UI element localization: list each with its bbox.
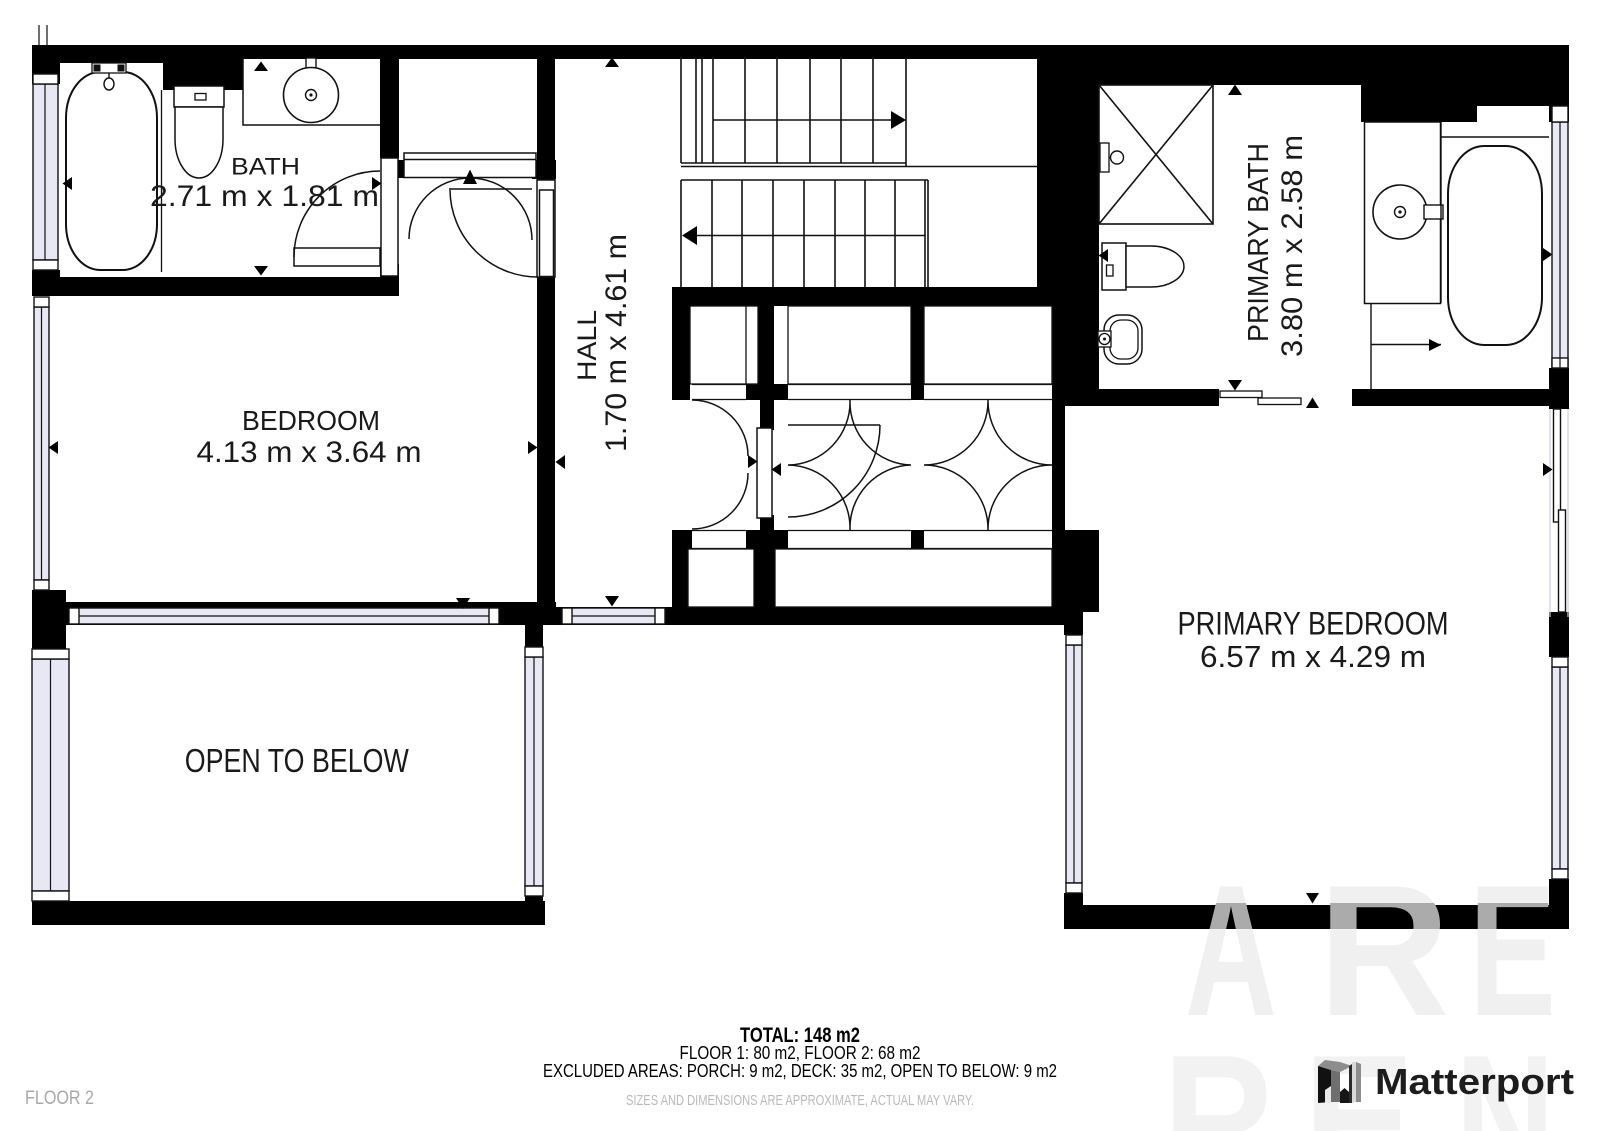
svg-text:BATH: BATH [231, 154, 300, 181]
svg-text:HALL: HALL [572, 310, 602, 381]
svg-text:PRIMARY BEDROOM: PRIMARY BEDROOM [1178, 606, 1449, 642]
svg-text:BEDROOM: BEDROOM [242, 405, 380, 436]
svg-text:Matterport: Matterport [1375, 1061, 1574, 1102]
svg-text:FLOOR 2: FLOOR 2 [25, 1087, 94, 1109]
svg-text:6.57 m x 4.29 m: 6.57 m x 4.29 m [1200, 640, 1426, 674]
svg-text:1.70 m x 4.61 m: 1.70 m x 4.61 m [600, 234, 633, 452]
svg-text:4.13 m x 3.64 m: 4.13 m x 3.64 m [197, 436, 422, 469]
svg-text:OPEN TO BELOW: OPEN TO BELOW [185, 742, 410, 779]
svg-text:EXCLUDED AREAS: PORCH: 9 m2, D: EXCLUDED AREAS: PORCH: 9 m2, DECK: 35 m2… [543, 1060, 1057, 1081]
svg-text:2.71 m x 1.81 m: 2.71 m x 1.81 m [150, 180, 379, 213]
svg-text:SIZES AND DIMENSIONS ARE APPRO: SIZES AND DIMENSIONS ARE APPROXIMATE, AC… [626, 1092, 974, 1109]
svg-text:3.80 m x 2.58 m: 3.80 m x 2.58 m [1276, 135, 1309, 357]
svg-text:PRIMARY BATH: PRIMARY BATH [1243, 143, 1275, 342]
svg-text:R: R [1163, 1016, 1275, 1131]
